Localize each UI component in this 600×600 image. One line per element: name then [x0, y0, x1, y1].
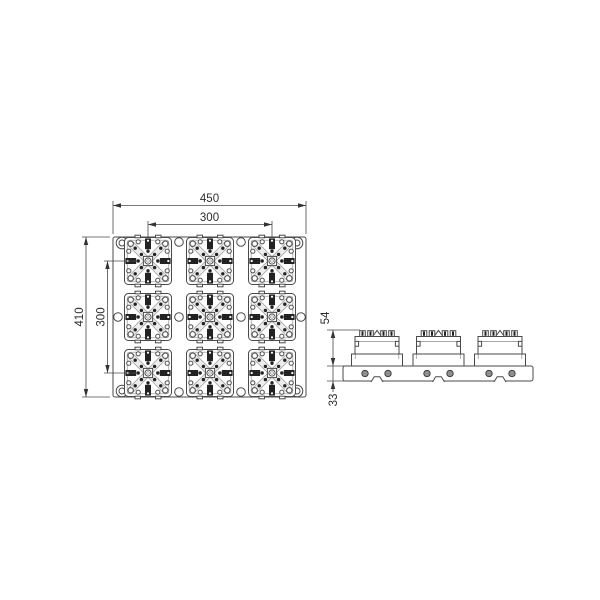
clamp-module: [249, 235, 296, 287]
plate-hole: [362, 370, 368, 376]
clamp-module: [187, 347, 234, 399]
plate-hole: [385, 370, 391, 376]
dim-arrow: [148, 222, 156, 226]
module-grid: [125, 235, 296, 399]
dim-arrow: [331, 381, 335, 389]
mounting-hole: [237, 388, 246, 397]
clamp-module: [125, 291, 172, 343]
side-module: [352, 330, 403, 366]
clamp-module: [187, 291, 234, 343]
side-view: 54 33: [320, 311, 533, 406]
technical-drawing-page: 450 300 410 300: [0, 0, 600, 600]
side-module: [413, 330, 464, 366]
dim-label-pitch-y: 300: [96, 307, 108, 326]
dim-arrow: [84, 389, 88, 397]
mounting-hole: [175, 238, 184, 247]
mounting-hole: [175, 313, 184, 322]
dim-arrow: [105, 365, 109, 373]
dim-arrow: [264, 222, 272, 226]
dim-arrow: [298, 203, 306, 207]
clamp-module: [249, 291, 296, 343]
plate-hole: [486, 370, 492, 376]
dim-arrow: [105, 261, 109, 269]
mounting-hole: [175, 388, 184, 397]
clamp-module: [187, 235, 234, 287]
plate-hole: [447, 370, 453, 376]
side-modules: [352, 330, 526, 366]
dim-arrow: [331, 358, 335, 366]
mounting-hole: [237, 238, 246, 247]
side-module: [475, 330, 526, 366]
dim-arrow: [113, 203, 121, 207]
mounting-hole: [237, 313, 246, 322]
dimension-pitch-x: 300: [148, 212, 272, 237]
plate-hole: [424, 370, 430, 376]
mounting-hole: [297, 313, 306, 322]
top-view: 450 300 410 300: [74, 193, 306, 399]
clamp-module: [249, 347, 296, 399]
dim-label-pitch-x: 300: [200, 212, 219, 224]
dim-arrow: [331, 330, 335, 338]
mounting-hole: [114, 313, 123, 322]
dim-label-plate-thickness: 33: [328, 394, 340, 407]
dim-label-module-height: 54: [320, 311, 332, 324]
plate-hole: [509, 370, 515, 376]
dim-arrow: [84, 237, 88, 245]
dim-label-overall-height: 410: [74, 307, 86, 326]
dim-label-overall-width: 450: [200, 193, 219, 205]
technical-drawing: 450 300 410 300: [0, 0, 600, 600]
